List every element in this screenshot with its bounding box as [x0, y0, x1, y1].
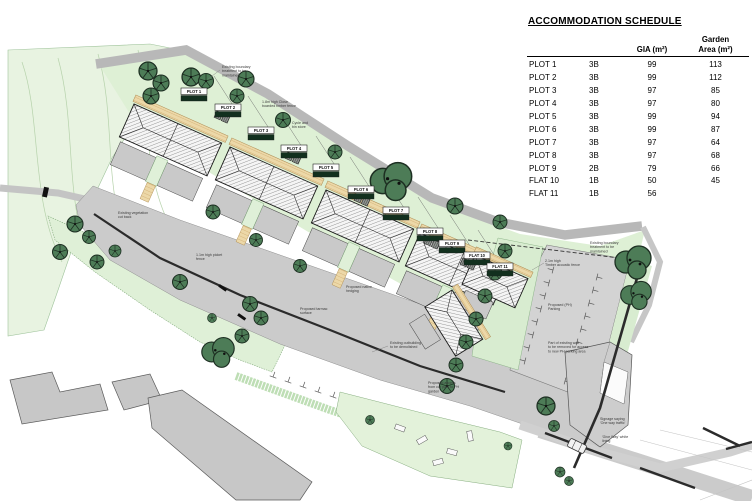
plot-marker-3: PLOT 3 — [248, 127, 274, 140]
plot-marker-9: PLOT 9 — [439, 240, 465, 253]
schedule-cell: 3B — [582, 111, 622, 124]
tree-icon — [67, 216, 83, 232]
schedule-cell: 3B — [582, 85, 622, 98]
tree-icon — [537, 397, 555, 415]
plot-marker-8: PLOT 8 — [417, 228, 443, 241]
schedule-cell: PLOT 6 — [527, 124, 582, 137]
ffl-badge — [464, 260, 490, 266]
ffl-badge — [383, 215, 409, 221]
tree-icon — [366, 416, 375, 425]
schedule-cell: 3B — [582, 72, 622, 85]
svg-text:PLOT 8: PLOT 8 — [423, 229, 438, 234]
tree-icon — [493, 215, 507, 229]
svg-text:cut back: cut back — [118, 215, 132, 219]
schedule-cell: 113 — [682, 59, 749, 72]
schedule-cell: PLOT 9 — [527, 163, 582, 176]
schedule-cell: 97 — [622, 85, 682, 98]
svg-text:FLAT 11: FLAT 11 — [492, 264, 508, 269]
annotation: 'Give Way' white lining — [602, 435, 628, 443]
tree-icon — [206, 205, 220, 219]
schedule-cell: 80 — [682, 98, 749, 111]
schedule-cell: 112 — [682, 72, 749, 85]
tree-icon — [173, 275, 188, 290]
tree-icon — [243, 297, 258, 312]
tree-icon — [549, 421, 560, 432]
col-header-garden-line1: Garden — [702, 35, 729, 44]
ffl-badge — [281, 153, 307, 159]
tree-icon — [109, 245, 121, 257]
schedule-cell: PLOT 1 — [527, 59, 582, 72]
tree-icon — [447, 198, 463, 214]
schedule-cell: 97 — [622, 150, 682, 163]
plot-marker-6: PLOT 6 — [348, 186, 374, 199]
tree-icon — [182, 68, 200, 86]
tree-icon — [235, 329, 249, 343]
plot-marker-1: PLOT 1 — [181, 88, 207, 101]
svg-text:PLOT 9: PLOT 9 — [445, 241, 460, 246]
plot-marker-7: PLOT 7 — [383, 207, 409, 220]
ffl-badge — [248, 135, 274, 141]
tree-icon — [53, 245, 68, 260]
schedule-cell: 85 — [682, 85, 749, 98]
svg-text:to new PH parking area: to new PH parking area — [548, 349, 586, 353]
schedule-cell: 99 — [622, 111, 682, 124]
svg-text:FLAT 10: FLAT 10 — [469, 253, 486, 258]
annotation: Cycle and bin store — [292, 121, 308, 129]
svg-text:PLOT 6: PLOT 6 — [354, 187, 369, 192]
tree-icon — [153, 75, 169, 91]
col-header-garden-line2: Area (m²) — [698, 45, 732, 54]
tree-icon — [469, 312, 483, 326]
plot-marker-flat-10: FLAT 10 — [464, 252, 490, 265]
tree-icon — [449, 358, 463, 372]
svg-text:garden: garden — [428, 389, 439, 393]
tree-icon — [83, 231, 96, 244]
schedule-cell: PLOT 4 — [527, 98, 582, 111]
schedule-cell: 97 — [622, 137, 682, 150]
existing-buildings-southwest — [10, 372, 312, 500]
svg-text:bin store: bin store — [292, 125, 306, 129]
schedule-cell: 3B — [582, 98, 622, 111]
plot-marker-flat-11: FLAT 11 — [487, 263, 513, 276]
svg-text:'One way traffic': 'One way traffic' — [600, 421, 626, 425]
tree-icon — [139, 62, 157, 80]
svg-text:maintained: maintained — [222, 73, 240, 77]
col-header-gia: GIA (m²) — [622, 45, 682, 57]
schedule-cell: 2B — [582, 163, 622, 176]
schedule-cell: PLOT 7 — [527, 137, 582, 150]
tree-icon — [254, 311, 268, 325]
schedule-cell: 68 — [682, 150, 749, 163]
svg-text:lining: lining — [602, 439, 610, 443]
svg-text:surface: surface — [300, 311, 312, 315]
annotation: Signage saying 'One way traffic' — [600, 417, 626, 425]
site-plan-page: PLOT 1 PLOT 2 PLOT 3 PLOT 4 PLOT 5 PLOT … — [0, 0, 752, 501]
schedule-cell: 56 — [622, 188, 682, 201]
ffl-badge — [348, 194, 374, 200]
tree-icon — [498, 244, 512, 258]
schedule-cell: 99 — [622, 124, 682, 137]
tree-icon — [238, 71, 254, 87]
schedule-cell: FLAT 10 — [527, 175, 582, 188]
svg-text:boarded timber fence: boarded timber fence — [262, 104, 296, 108]
tree-icon — [478, 289, 492, 303]
svg-text:PLOT 5: PLOT 5 — [319, 165, 334, 170]
annotation: Existing outbuilding to be demolished — [390, 341, 421, 349]
schedule-cell: PLOT 2 — [527, 72, 582, 85]
schedule-cell: 99 — [622, 72, 682, 85]
svg-text:hedging: hedging — [346, 289, 359, 293]
svg-text:Parking: Parking — [548, 307, 560, 311]
ffl-badge — [215, 112, 241, 118]
tree-icon — [565, 477, 574, 486]
schedule-cell — [682, 188, 749, 201]
svg-text:PLOT 3: PLOT 3 — [254, 128, 269, 133]
schedule-cell: 3B — [582, 59, 622, 72]
tree-icon — [143, 88, 159, 104]
schedule-cell: 87 — [682, 124, 749, 137]
svg-text:maintained: maintained — [590, 249, 608, 253]
svg-text:Timber acoustic fence: Timber acoustic fence — [545, 263, 580, 267]
schedule-cell: 64 — [682, 137, 749, 150]
tree-icon — [294, 260, 307, 273]
tree-icon — [208, 314, 217, 323]
schedule-cell: 99 — [622, 59, 682, 72]
svg-text:fence: fence — [196, 257, 205, 261]
tree-icon — [276, 113, 291, 128]
schedule-cell: 94 — [682, 111, 749, 124]
plot-marker-2: PLOT 2 — [215, 104, 241, 117]
tree-icon — [504, 442, 512, 450]
tree-icon — [250, 234, 263, 247]
schedule-cell: PLOT 5 — [527, 111, 582, 124]
ffl-badge — [439, 248, 465, 254]
tree-icon — [459, 335, 473, 349]
svg-text:PLOT 4: PLOT 4 — [287, 146, 302, 151]
svg-text:to be demolished: to be demolished — [390, 345, 417, 349]
plot-marker-5: PLOT 5 — [313, 164, 339, 177]
svg-text:PLOT 1: PLOT 1 — [187, 89, 202, 94]
tree-icon — [199, 74, 214, 89]
svg-text:PLOT 7: PLOT 7 — [389, 208, 404, 213]
annotation: 1.8m high Close boarded timber fence — [262, 100, 296, 108]
tree-icon — [555, 467, 565, 477]
col-header-garden: GardenArea (m²) — [682, 35, 749, 56]
tree-icon — [90, 255, 104, 269]
accommodation-schedule: ACCOMMODATION SCHEDULE GIA (m²) GardenAr… — [527, 16, 751, 201]
schedule-cell: 45 — [682, 175, 749, 188]
schedule-cell: 1B — [582, 188, 622, 201]
schedule-cell: 1B — [582, 175, 622, 188]
schedule-cell: PLOT 8 — [527, 150, 582, 163]
tree-icon — [328, 145, 342, 159]
schedule-cell: PLOT 3 — [527, 85, 582, 98]
schedule-cell: 79 — [622, 163, 682, 176]
schedule-cell: 97 — [622, 98, 682, 111]
schedule-cell: 3B — [582, 124, 622, 137]
tree-icon — [230, 89, 244, 103]
svg-text:PLOT 2: PLOT 2 — [221, 105, 236, 110]
schedule-cell: 3B — [582, 137, 622, 150]
schedule-cell: 3B — [582, 150, 622, 163]
ffl-badge — [313, 172, 339, 178]
schedule-title: ACCOMMODATION SCHEDULE — [528, 16, 751, 27]
schedule-cell: 66 — [682, 163, 749, 176]
header-rule — [527, 56, 749, 57]
ffl-badge — [181, 96, 207, 102]
schedule-cell: FLAT 11 — [527, 188, 582, 201]
plot-marker-4: PLOT 4 — [281, 145, 307, 158]
schedule-grid: GIA (m²) GardenArea (m²) PLOT 1 3B 99 11… — [527, 35, 751, 201]
ffl-badge — [487, 271, 513, 277]
schedule-cell: 50 — [622, 175, 682, 188]
